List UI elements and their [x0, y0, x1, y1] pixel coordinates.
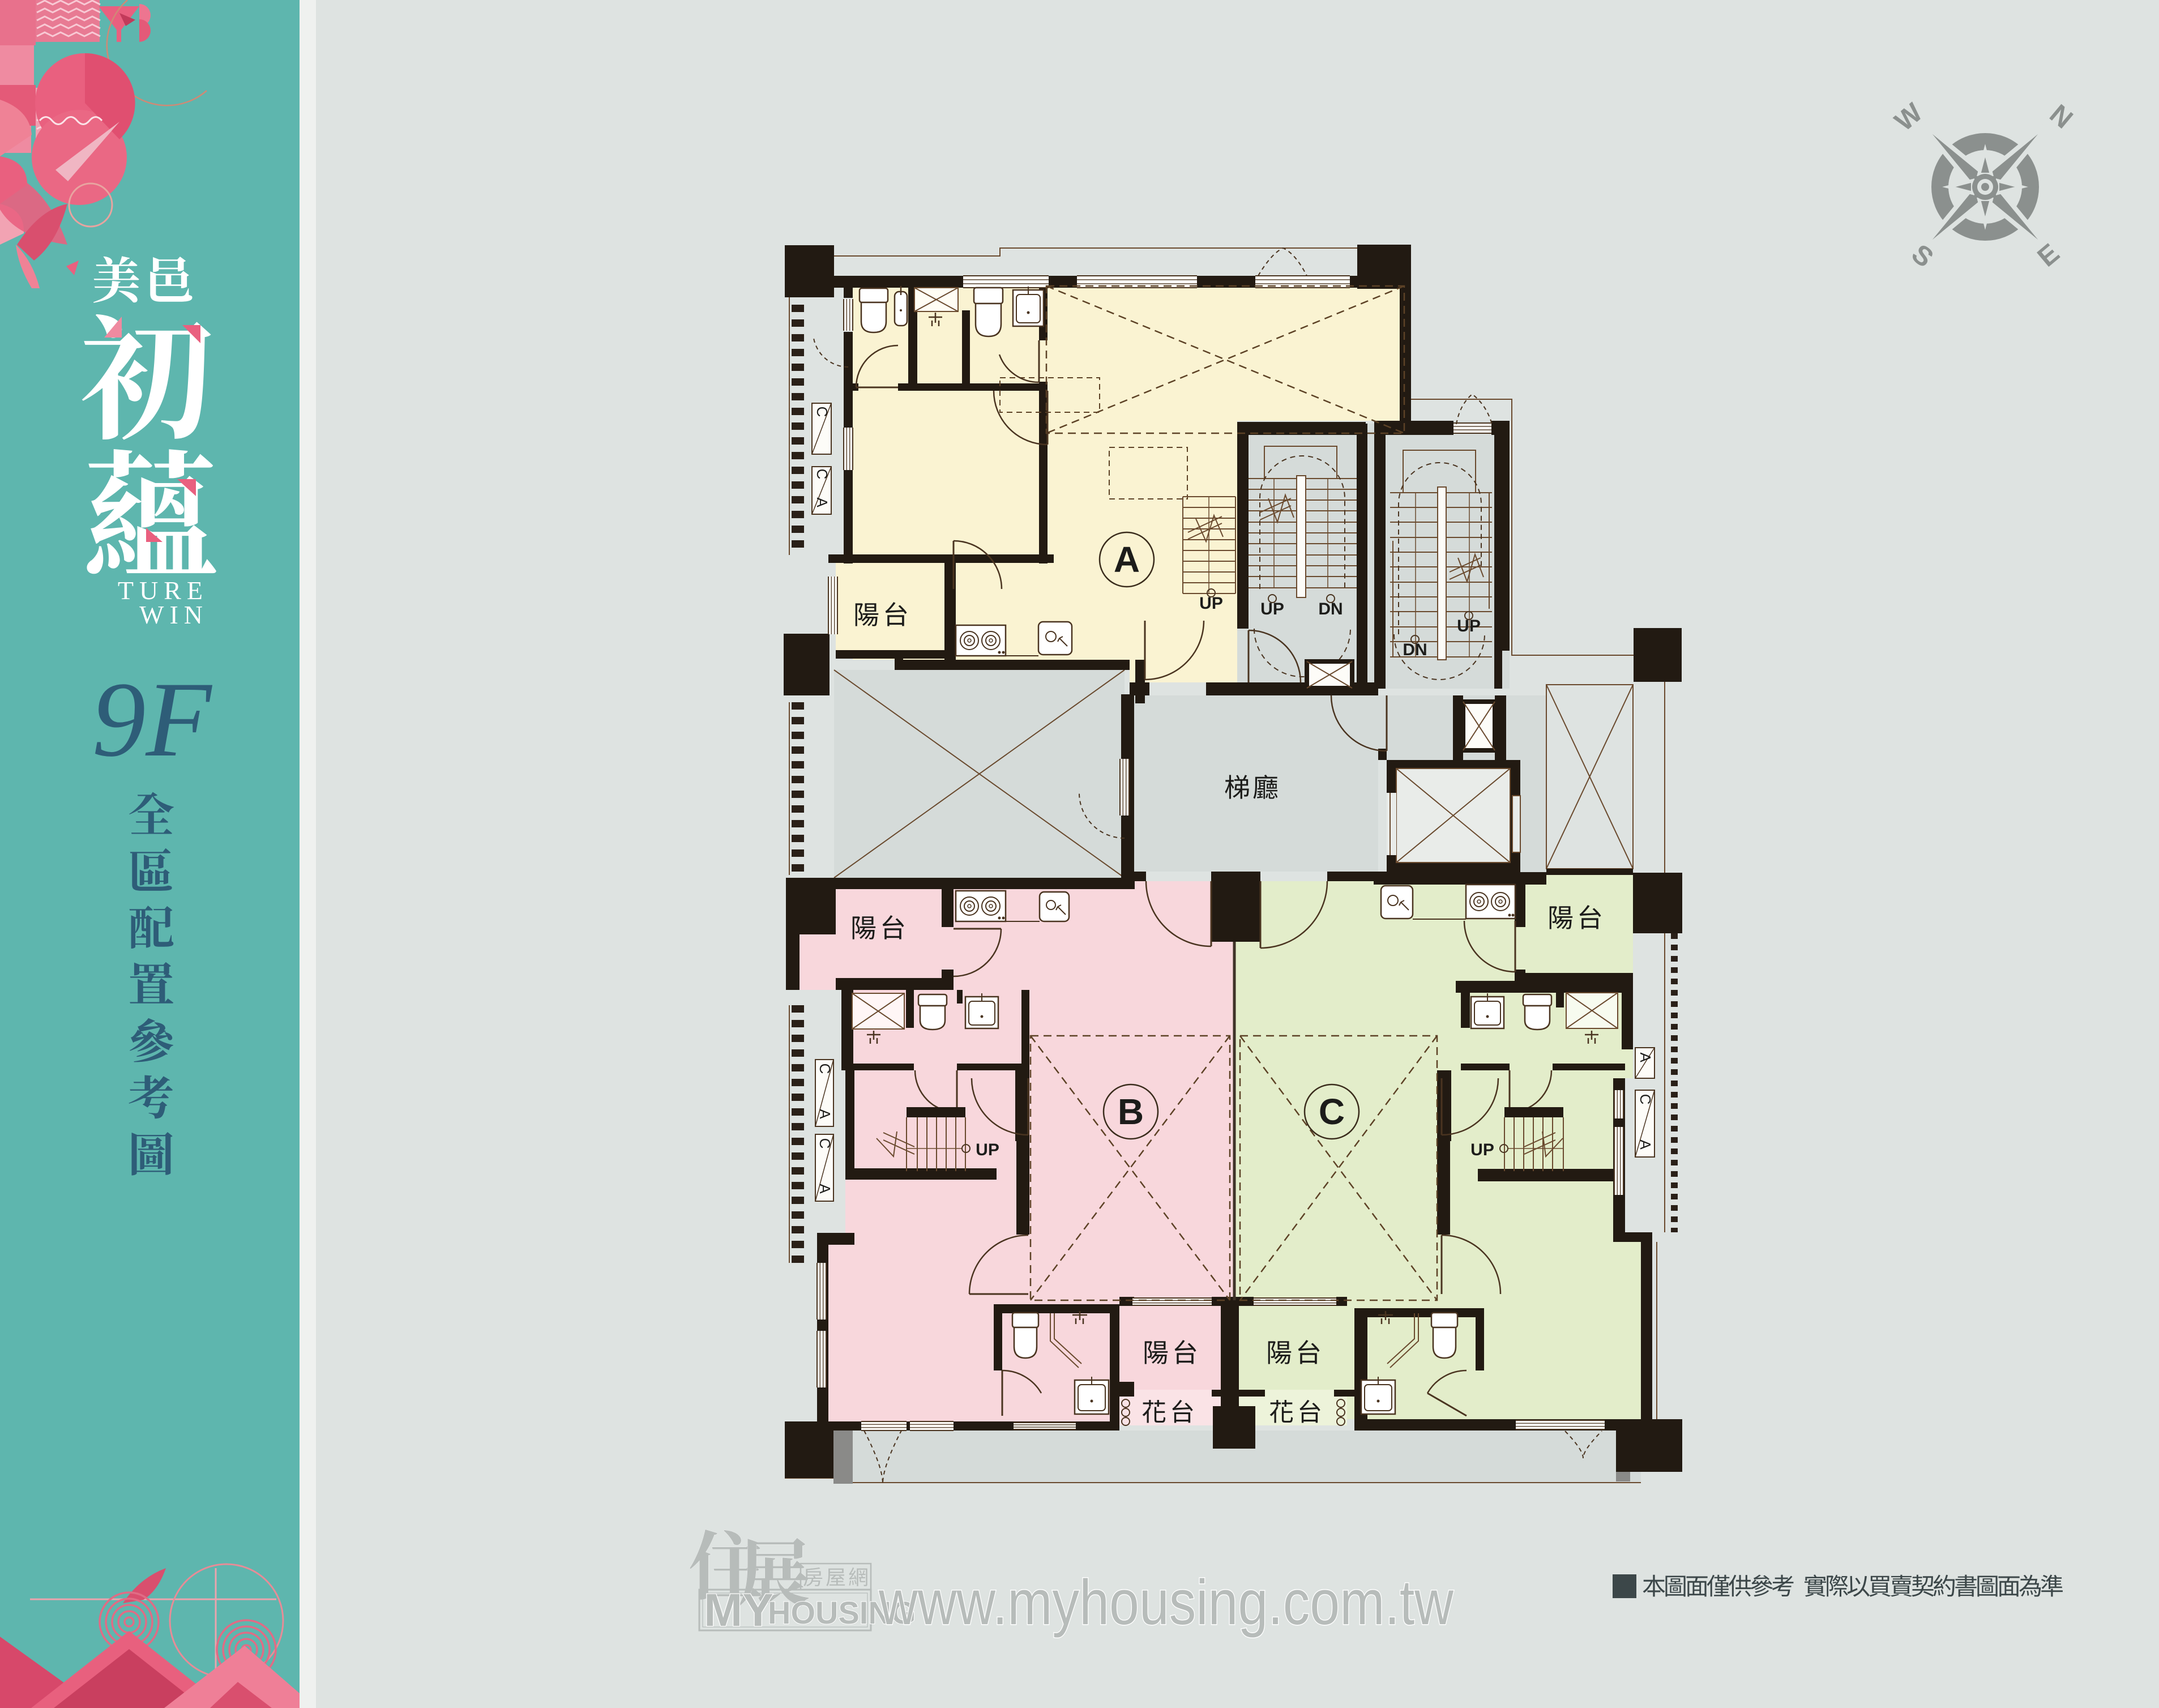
svg-text:C: C	[814, 407, 831, 417]
svg-text:UP: UP	[976, 1141, 999, 1159]
svg-text:A: A	[1114, 539, 1140, 580]
svg-text:UP: UP	[1470, 1141, 1494, 1159]
svg-text:UP: UP	[1199, 594, 1223, 613]
svg-text:UP: UP	[1457, 617, 1481, 635]
svg-text:C: C	[816, 1138, 833, 1149]
svg-text:A: A	[1637, 1052, 1654, 1062]
svg-text:9F: 9F	[92, 660, 212, 779]
svg-text:A: A	[814, 497, 831, 507]
svg-text:C: C	[1637, 1094, 1654, 1105]
svg-text:www.myhousing.com.tw: www.myhousing.com.tw	[878, 1567, 1454, 1638]
svg-text:A: A	[816, 1109, 833, 1119]
svg-text:A: A	[1637, 1139, 1654, 1150]
svg-text:C: C	[814, 469, 831, 480]
svg-text:C: C	[816, 1064, 833, 1074]
svg-text:C: C	[1319, 1091, 1345, 1132]
svg-text:DN: DN	[1318, 600, 1343, 618]
svg-text:WIN: WIN	[139, 600, 208, 629]
svg-text:UP: UP	[1260, 600, 1284, 618]
svg-text:B: B	[1118, 1091, 1144, 1132]
svg-text:A: A	[816, 1184, 833, 1194]
svg-text:MY: MY	[704, 1585, 773, 1636]
svg-text:DN: DN	[1403, 640, 1427, 659]
